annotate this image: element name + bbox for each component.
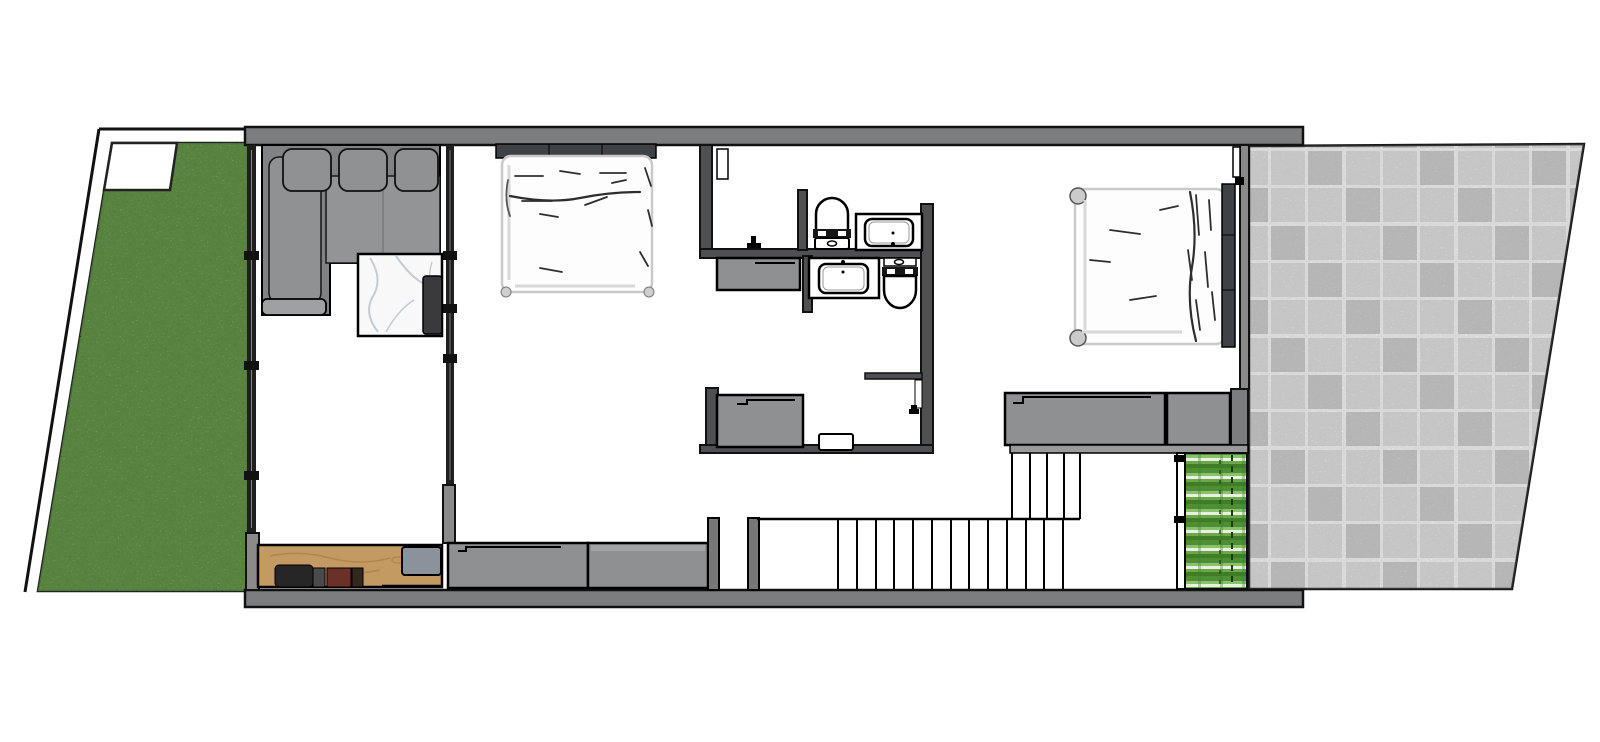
glass-hinge	[1174, 516, 1186, 523]
sideboard-item-black	[275, 565, 313, 587]
upper-run-treads	[1012, 453, 1080, 519]
living-room	[258, 145, 442, 587]
bed1-foot	[644, 287, 654, 297]
door-frame-tick	[1235, 177, 1244, 185]
sideboard-item-red	[327, 568, 351, 587]
glass-hinge	[1174, 455, 1186, 462]
stone-tile-patio	[1249, 144, 1584, 589]
bed2-headboard	[1222, 184, 1235, 347]
bed2-wardrobe-2	[1167, 393, 1230, 445]
bath-gray-cabinet	[717, 258, 800, 290]
shower-partition	[798, 190, 807, 250]
vanity-sink-north	[856, 214, 922, 250]
floor-plan	[0, 0, 1600, 742]
mullion-knob	[443, 354, 457, 363]
sideboard-item-brown	[352, 568, 363, 587]
mullion-knob	[443, 251, 457, 260]
wall-tv-panel	[423, 276, 442, 334]
bed1-foot	[501, 287, 511, 297]
stair-hall	[708, 453, 1247, 590]
glass-wall-to-planter	[1174, 453, 1186, 589]
wood-sideboard	[258, 545, 442, 587]
door-threshold	[819, 434, 853, 450]
mullion-knob	[244, 251, 259, 260]
sofa-back-pillow	[339, 149, 387, 191]
door-jamb	[748, 518, 759, 590]
mullion-knob	[443, 304, 457, 313]
bedroom-1	[448, 144, 708, 588]
sofa-armrest	[262, 299, 326, 315]
bed1	[501, 156, 654, 297]
floor-plan-canvas	[0, 0, 1600, 742]
toilet-south	[882, 258, 918, 308]
sofa-back-pillow	[395, 149, 438, 191]
bathroom	[700, 149, 933, 453]
u-shaped-staircase	[757, 453, 1080, 589]
patio-tiles-texture	[1249, 144, 1584, 589]
closet-door-leaf	[915, 380, 922, 408]
bottom-wall	[245, 590, 1303, 607]
partition-jamb	[443, 485, 455, 543]
living-bedroom1-partition	[443, 145, 457, 543]
bed2	[1070, 188, 1225, 346]
bed1-wardrobe-1	[448, 543, 588, 588]
lower-run-treads	[838, 520, 1063, 589]
lawn-corner-pad	[104, 143, 177, 190]
bedroom1-bath-wall	[700, 145, 712, 258]
vanity-sink-south	[809, 258, 879, 298]
wardrobe-shelf-band	[1010, 445, 1248, 453]
bed1-wardrobe-2	[588, 543, 708, 588]
entry-door-recess	[708, 518, 759, 590]
door-jamb	[708, 518, 719, 590]
top-wall	[245, 127, 1303, 145]
bath-door-leaf	[717, 149, 728, 179]
patio-door-leaf	[1233, 147, 1240, 177]
gray-desktop-unit	[402, 547, 441, 575]
bedroom-2	[1005, 184, 1248, 453]
toilet-north	[813, 198, 851, 249]
lawn-garden	[25, 129, 248, 592]
mullion-knob	[244, 361, 259, 370]
mullion-knob	[244, 471, 259, 480]
sofa-back-pillow	[283, 149, 331, 191]
closet-gray-cabinet	[717, 395, 803, 447]
inner-closet-room	[717, 380, 922, 450]
closet-stub-wall	[865, 373, 922, 379]
planter-strip	[1185, 453, 1247, 589]
bed2-wardrobe-1	[1005, 393, 1165, 445]
sideboard-item-gray	[313, 568, 325, 587]
lawn-grass-texture	[38, 143, 248, 591]
shower-mixer	[747, 236, 761, 248]
